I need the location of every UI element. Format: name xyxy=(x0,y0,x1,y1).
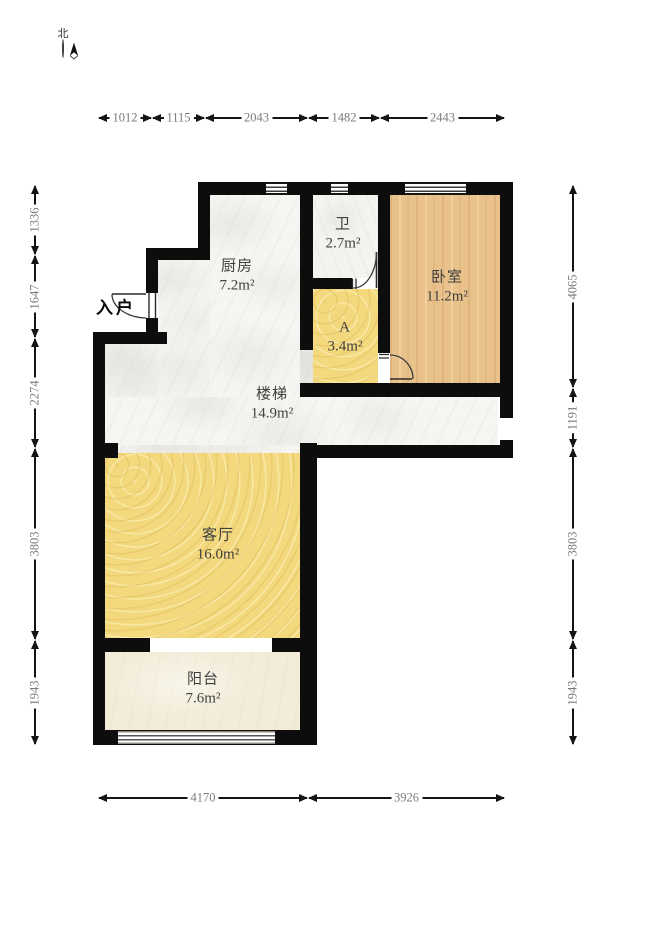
wall-living-balcony-right xyxy=(272,638,317,652)
dim-top-4: 1482 xyxy=(308,112,380,124)
arrow-right-icon xyxy=(299,114,308,122)
dim-bottom-1: 4170 xyxy=(98,792,308,804)
room-a-opening-floor xyxy=(300,350,313,383)
dim-value: 1943 xyxy=(566,677,581,708)
dim-value: 1482 xyxy=(329,111,360,126)
north-arrow-icon xyxy=(63,40,85,62)
arrow-down-icon xyxy=(569,379,577,388)
arrow-right-icon xyxy=(371,114,380,122)
arrow-up-icon xyxy=(569,640,577,649)
arrow-left-icon xyxy=(98,794,107,802)
bedroom-area: 11.2m² xyxy=(426,287,468,306)
hall-floor-left xyxy=(158,260,210,397)
dim-value: 1647 xyxy=(28,281,43,312)
arrow-up-icon xyxy=(569,448,577,457)
bedroom-label: 卧室 11.2m² xyxy=(426,268,468,306)
dim-value: 1943 xyxy=(28,677,43,708)
dim-value: 4170 xyxy=(188,791,219,806)
arrow-right-icon xyxy=(196,114,205,122)
compass-circle xyxy=(62,39,64,58)
wall-living-right xyxy=(300,443,317,745)
wall-kitchen-left xyxy=(198,182,210,255)
wall-kitchen-bath-divider xyxy=(300,182,313,350)
dim-value: 1336 xyxy=(28,205,43,236)
room-a-area: 3.4m² xyxy=(328,337,363,356)
dim-value: 1191 xyxy=(566,403,581,434)
bedroom-window xyxy=(405,182,466,195)
arrow-left-icon xyxy=(380,114,389,122)
floorplan-canvas: 北 xyxy=(0,0,657,936)
dim-bottom-2: 3926 xyxy=(308,792,505,804)
dim-value: 4065 xyxy=(566,271,581,302)
living-area: 16.0m² xyxy=(197,545,239,564)
arrow-down-icon xyxy=(569,631,577,640)
arrow-up-icon xyxy=(31,185,39,194)
balcony-area: 7.6m² xyxy=(186,689,221,708)
dim-right-2: 1191 xyxy=(567,388,579,448)
north-compass: 北 xyxy=(44,28,82,76)
bath-label: 卫 2.7m² xyxy=(326,215,361,253)
arrow-left-icon xyxy=(98,114,107,122)
stairs-floor-band xyxy=(105,397,498,445)
arrow-left-icon xyxy=(152,114,161,122)
arrow-down-icon xyxy=(31,439,39,448)
wall-bath-bottom xyxy=(300,278,352,289)
arrow-left-icon xyxy=(308,114,317,122)
arrow-right-icon xyxy=(299,794,308,802)
wall-living-balcony-left xyxy=(93,638,150,652)
arrow-up-icon xyxy=(31,255,39,264)
arrow-down-icon xyxy=(31,246,39,255)
dim-value: 1012 xyxy=(110,111,141,126)
wall-left-exterior xyxy=(93,332,105,745)
dim-left-4: 3803 xyxy=(29,448,41,640)
wall-living-top-stub xyxy=(93,443,118,458)
arrow-down-icon xyxy=(569,736,577,745)
wall-bedroom-left xyxy=(378,182,390,353)
arrow-up-icon xyxy=(31,338,39,347)
dim-value: 3926 xyxy=(391,791,422,806)
arrow-down-icon xyxy=(31,631,39,640)
hall-floor-lower-left xyxy=(105,344,158,397)
dim-right-4: 1943 xyxy=(567,640,579,745)
dim-right-3: 3803 xyxy=(567,448,579,640)
arrow-left-icon xyxy=(205,114,214,122)
stairs-label: 楼梯 14.9m² xyxy=(251,385,293,423)
bath-window xyxy=(331,182,348,195)
dim-value: 1115 xyxy=(163,111,193,126)
wall-step1-vertical xyxy=(146,248,158,293)
bath-door-frame xyxy=(353,279,357,290)
dim-value: 2043 xyxy=(241,111,272,126)
arrow-down-icon xyxy=(31,736,39,745)
wall-bedroom-a-bottom xyxy=(300,383,513,397)
kitchen-window xyxy=(266,182,287,195)
balcony-label: 阳台 7.6m² xyxy=(186,670,221,708)
arrow-down-icon xyxy=(569,439,577,448)
stairs-area: 14.9m² xyxy=(251,404,293,423)
room-a-label: A 3.4m² xyxy=(328,318,363,356)
kitchen-area: 7.2m² xyxy=(220,276,255,295)
arrow-right-icon xyxy=(496,794,505,802)
dim-left-2: 1647 xyxy=(29,255,41,338)
kitchen-floor xyxy=(210,194,300,397)
stairs-name: 楼梯 xyxy=(251,385,293,404)
dim-value: 3803 xyxy=(566,529,581,560)
arrow-right-icon xyxy=(496,114,505,122)
kitchen-label: 厨房 7.2m² xyxy=(220,257,255,295)
stairs-floor-strip xyxy=(105,445,300,453)
living-label: 客厅 16.0m² xyxy=(197,526,239,564)
living-name: 客厅 xyxy=(197,526,239,545)
arrow-up-icon xyxy=(569,185,577,194)
dim-top-2: 1115 xyxy=(152,112,205,124)
bedroom-name: 卧室 xyxy=(426,268,468,287)
room-a-name: A xyxy=(328,318,363,337)
arrow-up-icon xyxy=(31,640,39,649)
dim-top-5: 2443 xyxy=(380,112,505,124)
wall-below-entry-door xyxy=(146,318,158,332)
kitchen-name: 厨房 xyxy=(220,257,255,276)
dim-value: 2274 xyxy=(28,378,43,409)
dim-value: 3803 xyxy=(28,529,43,560)
dim-top-3: 2043 xyxy=(205,112,308,124)
dim-value: 2443 xyxy=(427,111,458,126)
bath-area: 2.7m² xyxy=(326,234,361,253)
bath-name: 卫 xyxy=(326,215,361,234)
dim-right-1: 4065 xyxy=(567,185,579,388)
balcony-name: 阳台 xyxy=(186,670,221,689)
entrance-label: 入户 xyxy=(96,294,136,319)
balcony-window xyxy=(118,731,275,744)
bedroom-door-frame xyxy=(379,355,389,359)
arrow-down-icon xyxy=(31,329,39,338)
entrance-door-frame xyxy=(149,293,156,319)
dim-left-5: 1943 xyxy=(29,640,41,745)
arrow-left-icon xyxy=(308,794,317,802)
wall-stairs-bottom xyxy=(300,445,513,458)
arrow-up-icon xyxy=(569,388,577,397)
dim-left-1: 1336 xyxy=(29,185,41,255)
arrow-right-icon xyxy=(143,114,152,122)
dim-top-1: 1012 xyxy=(98,112,152,124)
dim-left-3: 2274 xyxy=(29,338,41,448)
arrow-up-icon xyxy=(31,448,39,457)
